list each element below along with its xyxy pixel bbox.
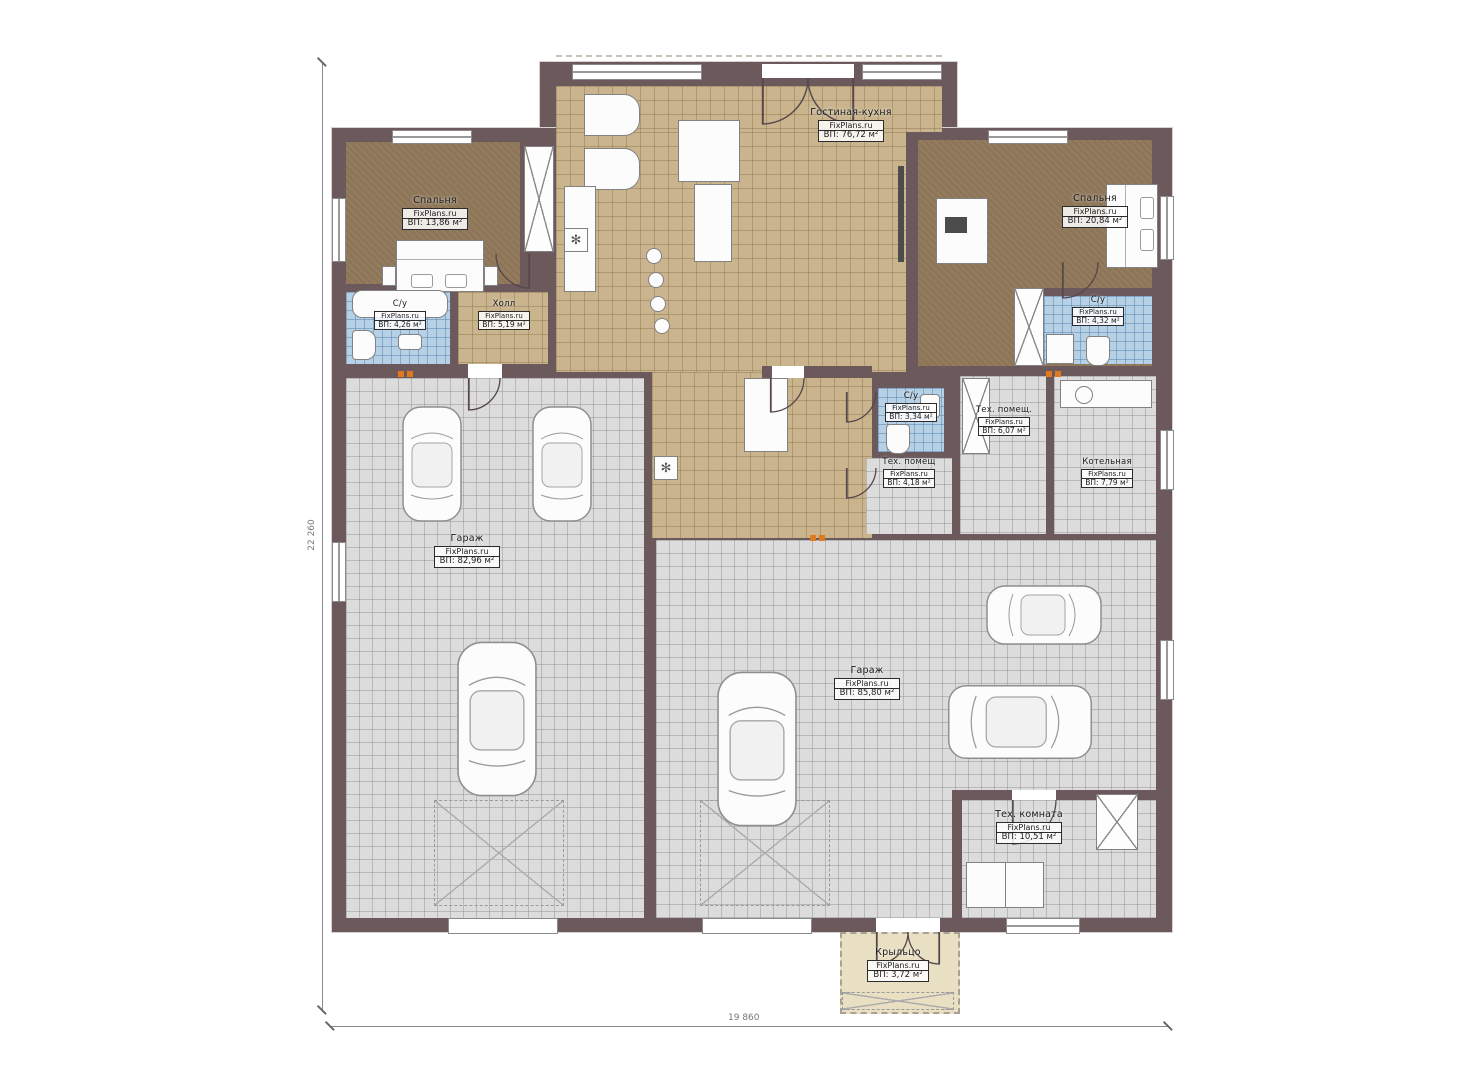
room-name: С/у	[1050, 296, 1146, 306]
kitchen-island-icon	[694, 184, 732, 262]
stool-icon	[648, 272, 664, 288]
room-label-boiler: Котельная FixPlans.ruВП: 7,79 м²	[1062, 458, 1152, 489]
door-bedroom-left	[496, 254, 530, 288]
window-living-top-right	[862, 64, 942, 80]
room-label-bedroom-left: Спальня FixPlans.ruВП: 13,86 м²	[380, 196, 490, 230]
bed-icon	[396, 240, 484, 292]
room-name: С/у	[876, 392, 946, 402]
room-area: ВП: 82,96 м²	[435, 557, 500, 567]
door-bedroom-right	[1062, 262, 1098, 298]
vent-marker	[1046, 371, 1052, 377]
garage-door-left	[448, 918, 558, 934]
room-name: Гараж	[412, 534, 522, 545]
door-hall-garage	[468, 378, 500, 410]
room-area: ВП: 4,18 м²	[884, 479, 933, 488]
room-area: ВП: 76,72 м²	[819, 131, 884, 141]
room-name: С/у	[352, 300, 448, 310]
window-tech-room-bottom	[1006, 918, 1080, 934]
car-icon	[530, 405, 594, 523]
room-area: ВП: 5,19 м²	[479, 321, 528, 330]
room-label-tech-mid: Тех. помещ FixPlans.ruВП: 4,18 м²	[866, 458, 952, 489]
window-garage-left-side	[332, 542, 346, 602]
wardrobe-icon	[524, 146, 554, 252]
room-label-porch: Крыльцо FixPlans.ruВП: 3,72 м²	[842, 948, 954, 982]
room-label-bath-right: С/у FixPlans.ruВП: 4,32 м²	[1050, 296, 1146, 327]
wardrobe-icon	[1014, 288, 1044, 366]
window-bedroom-right-side	[1160, 196, 1174, 260]
door-opening-tech-room	[1012, 790, 1056, 800]
room-name: Спальня	[380, 196, 490, 207]
room-name: Холл	[458, 300, 550, 310]
stool-icon	[654, 318, 670, 334]
vent-marker	[407, 371, 413, 377]
room-area: ВП: 10,51 м²	[997, 833, 1062, 843]
room-name: Тех. помещ.	[962, 406, 1046, 416]
door-bath-mid	[846, 392, 876, 422]
dimension-value-vertical: 22 260	[307, 519, 317, 551]
room-name: Гараж	[812, 666, 922, 677]
furnace-icon	[966, 862, 1044, 908]
room-area: ВП: 4,26 м²	[375, 321, 424, 330]
roof-overhang-line	[556, 55, 942, 57]
vent-marker	[398, 371, 404, 377]
tv-panel-icon	[898, 166, 904, 262]
room-area: ВП: 85,80 м²	[835, 689, 900, 699]
room-name: Спальня	[1040, 194, 1150, 205]
car-icon	[714, 644, 800, 854]
room-label-tech-room: Тех. комната FixPlans.ruВП: 10,51 м²	[968, 810, 1090, 844]
car-icon	[454, 614, 540, 824]
room-area: ВП: 20,84 м²	[1063, 217, 1128, 227]
dining-table-icon	[678, 120, 740, 182]
entry-door-opening	[762, 64, 854, 78]
room-name: Гостиная-кухня	[785, 108, 917, 119]
stove-icon: ✻	[654, 456, 678, 480]
toilet-icon	[1086, 336, 1110, 366]
window-living-top-left	[572, 64, 702, 80]
car-icon	[985, 583, 1103, 647]
sink-icon	[398, 334, 422, 350]
window-bedroom-left-side	[332, 198, 346, 262]
dimension-value-horizontal: 19 860	[728, 1013, 760, 1023]
room-area: ВП: 3,72 м²	[868, 971, 927, 981]
dimension-line-vertical	[322, 62, 323, 1010]
dimension-line-horizontal	[330, 1026, 1168, 1027]
room-area: ВП: 3,34 м²	[886, 413, 935, 422]
garage-door-right	[702, 918, 812, 934]
sofa-icon	[584, 94, 640, 136]
nightstand-icon	[382, 266, 396, 286]
door-opening-hall-garage	[468, 364, 502, 378]
room-area: ВП: 7,79 м²	[1082, 479, 1131, 488]
room-area: ВП: 13,86 м²	[403, 219, 468, 229]
door-opening-living-corridor	[772, 366, 804, 378]
car-icon	[400, 405, 464, 523]
washing-machine-icon	[1046, 334, 1074, 364]
room-area: ВП: 6,07 м²	[979, 427, 1028, 436]
room-label-garage-left: Гараж FixPlans.ruВП: 82,96 м²	[412, 534, 522, 568]
room-name: Тех. комната	[968, 810, 1090, 821]
floor-plan: ✻ ✻	[0, 0, 1473, 1080]
window-bedroom-left-top	[392, 130, 472, 144]
desk-icon	[936, 198, 988, 264]
stool-icon	[650, 296, 666, 312]
vent-marker	[819, 535, 825, 541]
room-name: Крыльцо	[842, 948, 954, 959]
toilet-icon	[352, 330, 376, 360]
room-label-tech-top: Тех. помещ. FixPlans.ruВП: 6,07 м²	[962, 406, 1046, 437]
room-label-bedroom-right: Спальня FixPlans.ruВП: 20,84 м²	[1040, 194, 1150, 228]
boiler-counter-icon	[1060, 380, 1152, 408]
room-label-living: Гостиная-кухня FixPlans.ruВП: 76,72 м²	[785, 108, 917, 142]
room-label-bath-mid: С/у FixPlans.ruВП: 3,34 м²	[876, 392, 946, 423]
porch-door-opening	[876, 918, 940, 932]
window-bedroom-right-top	[988, 130, 1068, 144]
window-garage-right-side	[1160, 640, 1174, 700]
sofa-icon	[584, 148, 640, 190]
room-area: ВП: 4,32 м²	[1073, 317, 1122, 326]
vent-shaft-icon	[1096, 794, 1138, 850]
toilet-icon	[886, 424, 910, 454]
room-name: Тех. помещ	[866, 458, 952, 468]
window-boiler-side	[1160, 430, 1174, 490]
room-name: Котельная	[1062, 458, 1152, 468]
vent-marker	[810, 535, 816, 541]
vent-marker	[1055, 371, 1061, 377]
suv-icon	[930, 682, 1110, 762]
stool-icon	[646, 248, 662, 264]
stove-icon: ✻	[564, 228, 588, 252]
room-label-garage-right: Гараж FixPlans.ruВП: 85,80 м²	[812, 666, 922, 700]
porch-steps	[842, 992, 954, 1010]
room-label-hall: Холл FixPlans.ruВП: 5,19 м²	[458, 300, 550, 331]
door-living-corridor	[770, 378, 804, 412]
wall-tech-room-left	[952, 790, 962, 918]
room-label-bath-left: С/у FixPlans.ruВП: 4,26 м²	[352, 300, 448, 331]
